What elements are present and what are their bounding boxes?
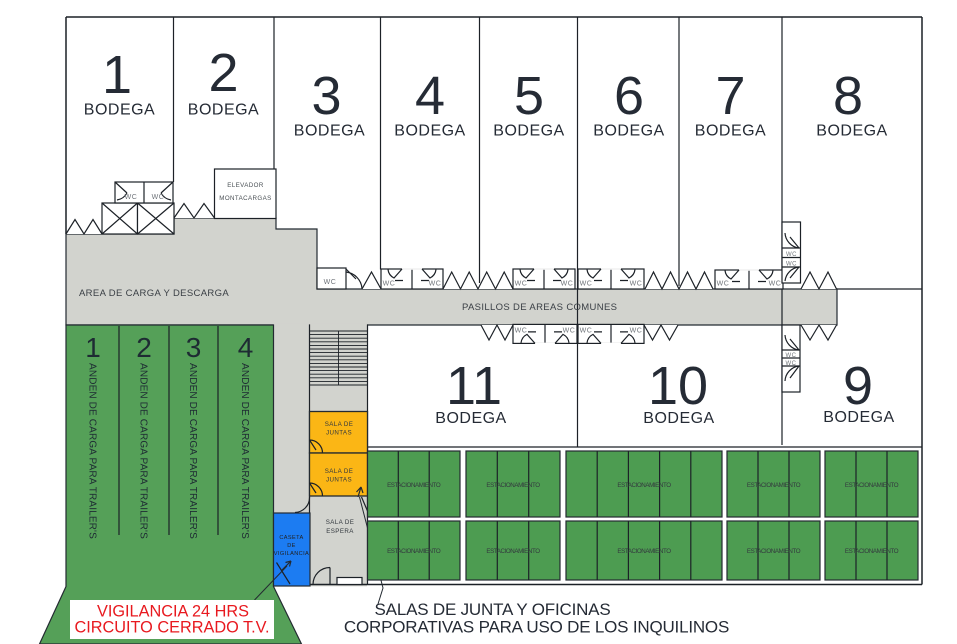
svg-text:PASILLOS DE AREAS COMUNES: PASILLOS DE AREAS COMUNES: [462, 302, 617, 313]
svg-text:WC: WC: [769, 281, 782, 288]
svg-text:ESTACIONAMIENTO: ESTACIONAMIENTO: [486, 548, 540, 555]
svg-text:BODEGA: BODEGA: [493, 123, 564, 140]
svg-text:CASETA: CASETA: [279, 535, 303, 541]
svg-text:WC: WC: [580, 281, 593, 288]
svg-text:WC: WC: [580, 328, 593, 335]
svg-text:WC: WC: [563, 328, 576, 335]
svg-text:8: 8: [833, 66, 863, 126]
svg-text:ESTACIONAMIENTO: ESTACIONAMIENTO: [387, 482, 441, 489]
svg-text:ESTACIONAMIENTO: ESTACIONAMIENTO: [617, 548, 671, 555]
svg-text:WC: WC: [152, 194, 165, 201]
svg-text:MONTACARGAS: MONTACARGAS: [219, 195, 271, 202]
svg-text:WC: WC: [515, 281, 528, 288]
svg-text:7: 7: [715, 66, 745, 126]
svg-text:ANDEN DE CARGA PARA TRAILER'S: ANDEN DE CARGA PARA TRAILER'S: [239, 363, 250, 539]
svg-text:ANDEN DE CARGA PARA TRAILER'S: ANDEN DE CARGA PARA TRAILER'S: [87, 363, 98, 539]
svg-text:BODEGA: BODEGA: [84, 102, 155, 119]
svg-text:BODEGA: BODEGA: [188, 102, 259, 119]
svg-text:11: 11: [446, 356, 502, 416]
svg-text:SALA DE: SALA DE: [325, 421, 354, 428]
svg-text:ESTACIONAMIENTO: ESTACIONAMIENTO: [747, 548, 801, 555]
svg-text:ESTACIONAMIENTO: ESTACIONAMIENTO: [486, 482, 540, 489]
svg-text:WC: WC: [125, 194, 138, 201]
svg-text:ESTACIONAMIENTO: ESTACIONAMIENTO: [747, 482, 801, 489]
svg-text:ESTACIONAMIENTO: ESTACIONAMIENTO: [845, 548, 899, 555]
svg-text:ANDEN DE CARGA PARA TRAILER'S: ANDEN DE CARGA PARA TRAILER'S: [138, 363, 149, 539]
svg-text:WC: WC: [429, 281, 442, 288]
svg-text:WC: WC: [630, 328, 643, 335]
svg-text:WC: WC: [383, 281, 396, 288]
svg-text:WC: WC: [717, 281, 730, 288]
svg-text:JUNTAS: JUNTAS: [326, 430, 352, 437]
svg-text:WC: WC: [786, 252, 797, 258]
svg-text:JUNTAS: JUNTAS: [326, 477, 352, 484]
svg-text:ESTACIONAMIENTO: ESTACIONAMIENTO: [387, 548, 441, 555]
svg-text:1: 1: [102, 45, 132, 105]
svg-text:2: 2: [208, 43, 238, 103]
svg-text:WC: WC: [630, 281, 643, 288]
svg-text:AREA DE CARGA Y DESCARGA: AREA DE CARGA Y DESCARGA: [79, 288, 229, 299]
svg-text:4: 4: [238, 332, 254, 363]
svg-text:WC: WC: [786, 262, 797, 268]
svg-text:ANDEN DE CARGA PARA TRAILER'S: ANDEN DE CARGA PARA TRAILER'S: [187, 363, 198, 539]
svg-text:ESTACIONAMIENTO: ESTACIONAMIENTO: [617, 482, 671, 489]
svg-text:WC: WC: [786, 361, 797, 367]
svg-text:BODEGA: BODEGA: [823, 409, 894, 426]
svg-text:WC: WC: [515, 328, 528, 335]
svg-text:3: 3: [311, 66, 341, 126]
svg-text:3: 3: [186, 332, 202, 363]
svg-text:SALA DE: SALA DE: [326, 519, 355, 526]
svg-text:6: 6: [614, 66, 644, 126]
svg-text:BODEGA: BODEGA: [816, 123, 887, 140]
svg-text:2: 2: [136, 332, 152, 363]
svg-text:CORPORATIVAS PARA USO DE LOS I: CORPORATIVAS PARA USO DE LOS INQUILINOS: [344, 618, 729, 637]
svg-text:WC: WC: [561, 281, 574, 288]
svg-text:5: 5: [514, 66, 544, 126]
svg-text:SALAS DE JUNTA Y OFICINAS: SALAS DE JUNTA Y OFICINAS: [375, 600, 611, 619]
svg-text:4: 4: [415, 66, 445, 126]
svg-text:ESTACIONAMIENTO: ESTACIONAMIENTO: [845, 482, 899, 489]
svg-text:ELEVADOR: ELEVADOR: [227, 182, 264, 189]
svg-text:CIRCUITO CERRADO T.V.: CIRCUITO CERRADO T.V.: [74, 619, 269, 637]
svg-text:VIGILANCIA: VIGILANCIA: [274, 551, 309, 557]
svg-text:9: 9: [843, 356, 873, 416]
svg-text:ESPERA: ESPERA: [326, 528, 354, 535]
svg-text:BODEGA: BODEGA: [695, 123, 766, 140]
svg-text:BODEGA: BODEGA: [435, 410, 506, 427]
svg-text:WC: WC: [324, 279, 337, 286]
svg-text:SALA DE: SALA DE: [325, 468, 354, 475]
svg-text:BODEGA: BODEGA: [593, 123, 664, 140]
svg-text:DE: DE: [287, 543, 296, 549]
svg-text:BODEGA: BODEGA: [394, 123, 465, 140]
svg-text:WC: WC: [786, 353, 797, 359]
svg-text:BODEGA: BODEGA: [294, 123, 365, 140]
svg-text:BODEGA: BODEGA: [643, 410, 714, 427]
svg-text:10: 10: [648, 356, 708, 416]
svg-text:1: 1: [85, 332, 101, 363]
